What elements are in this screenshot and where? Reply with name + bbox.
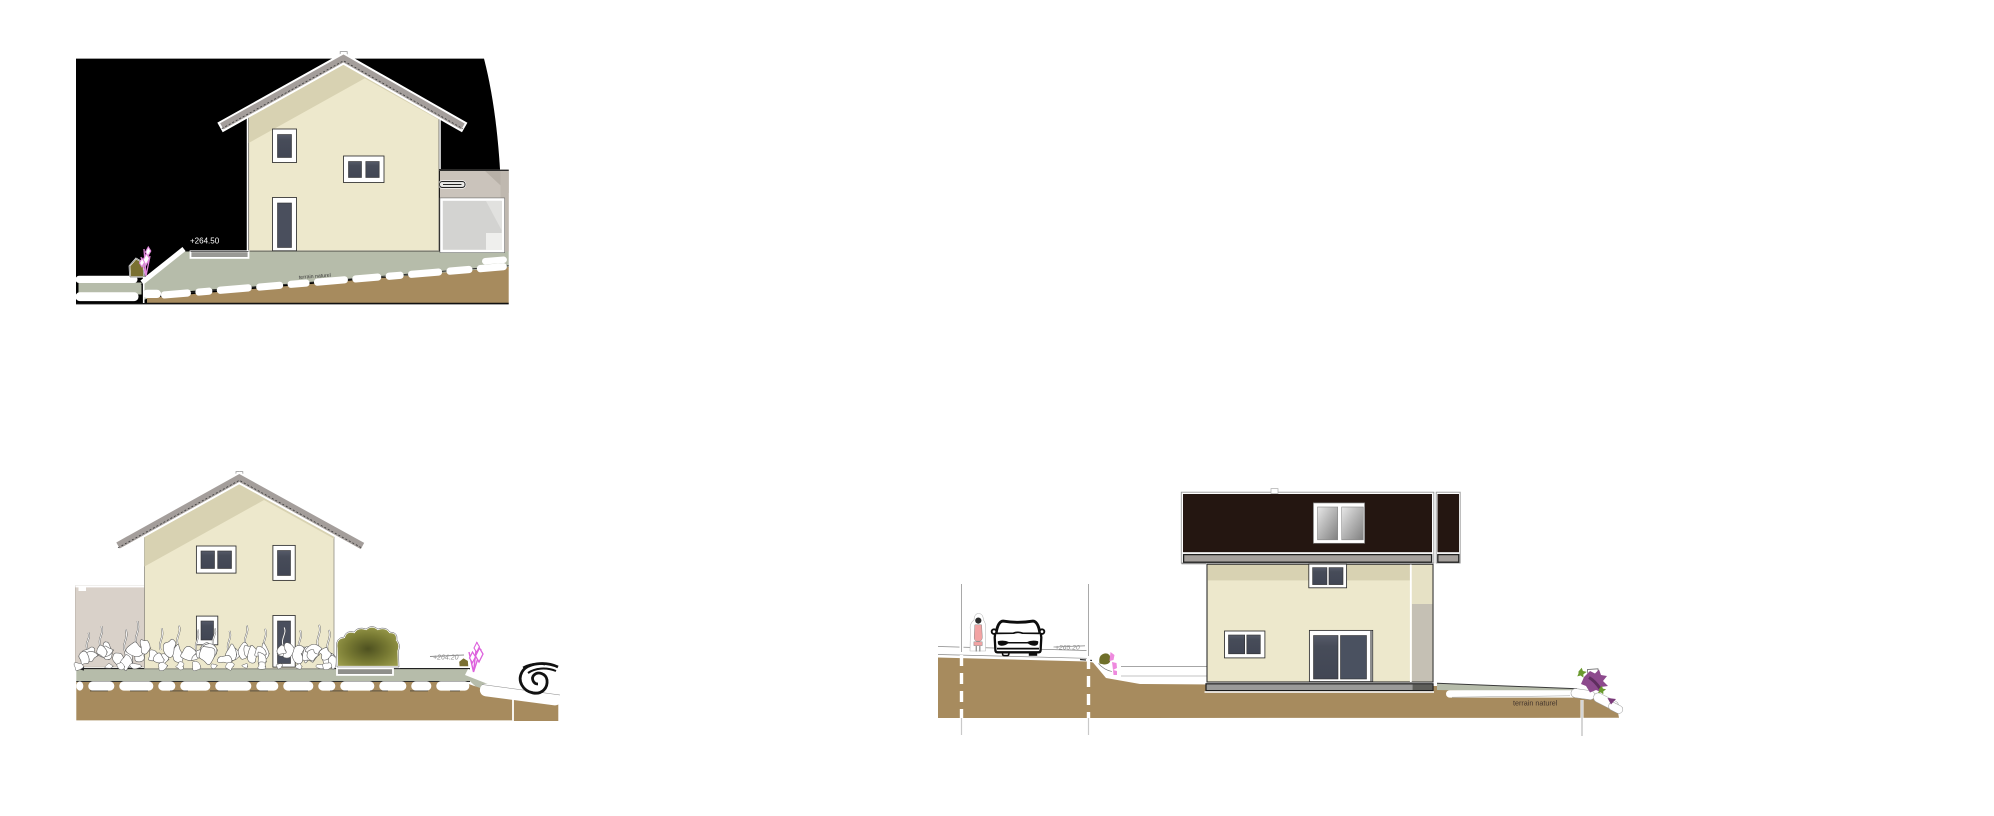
svg-text:+265.20: +265.20 bbox=[1055, 645, 1080, 652]
svg-text:terrain naturel: terrain naturel bbox=[1513, 699, 1558, 708]
svg-text:+264.50: +264.50 bbox=[190, 237, 220, 246]
